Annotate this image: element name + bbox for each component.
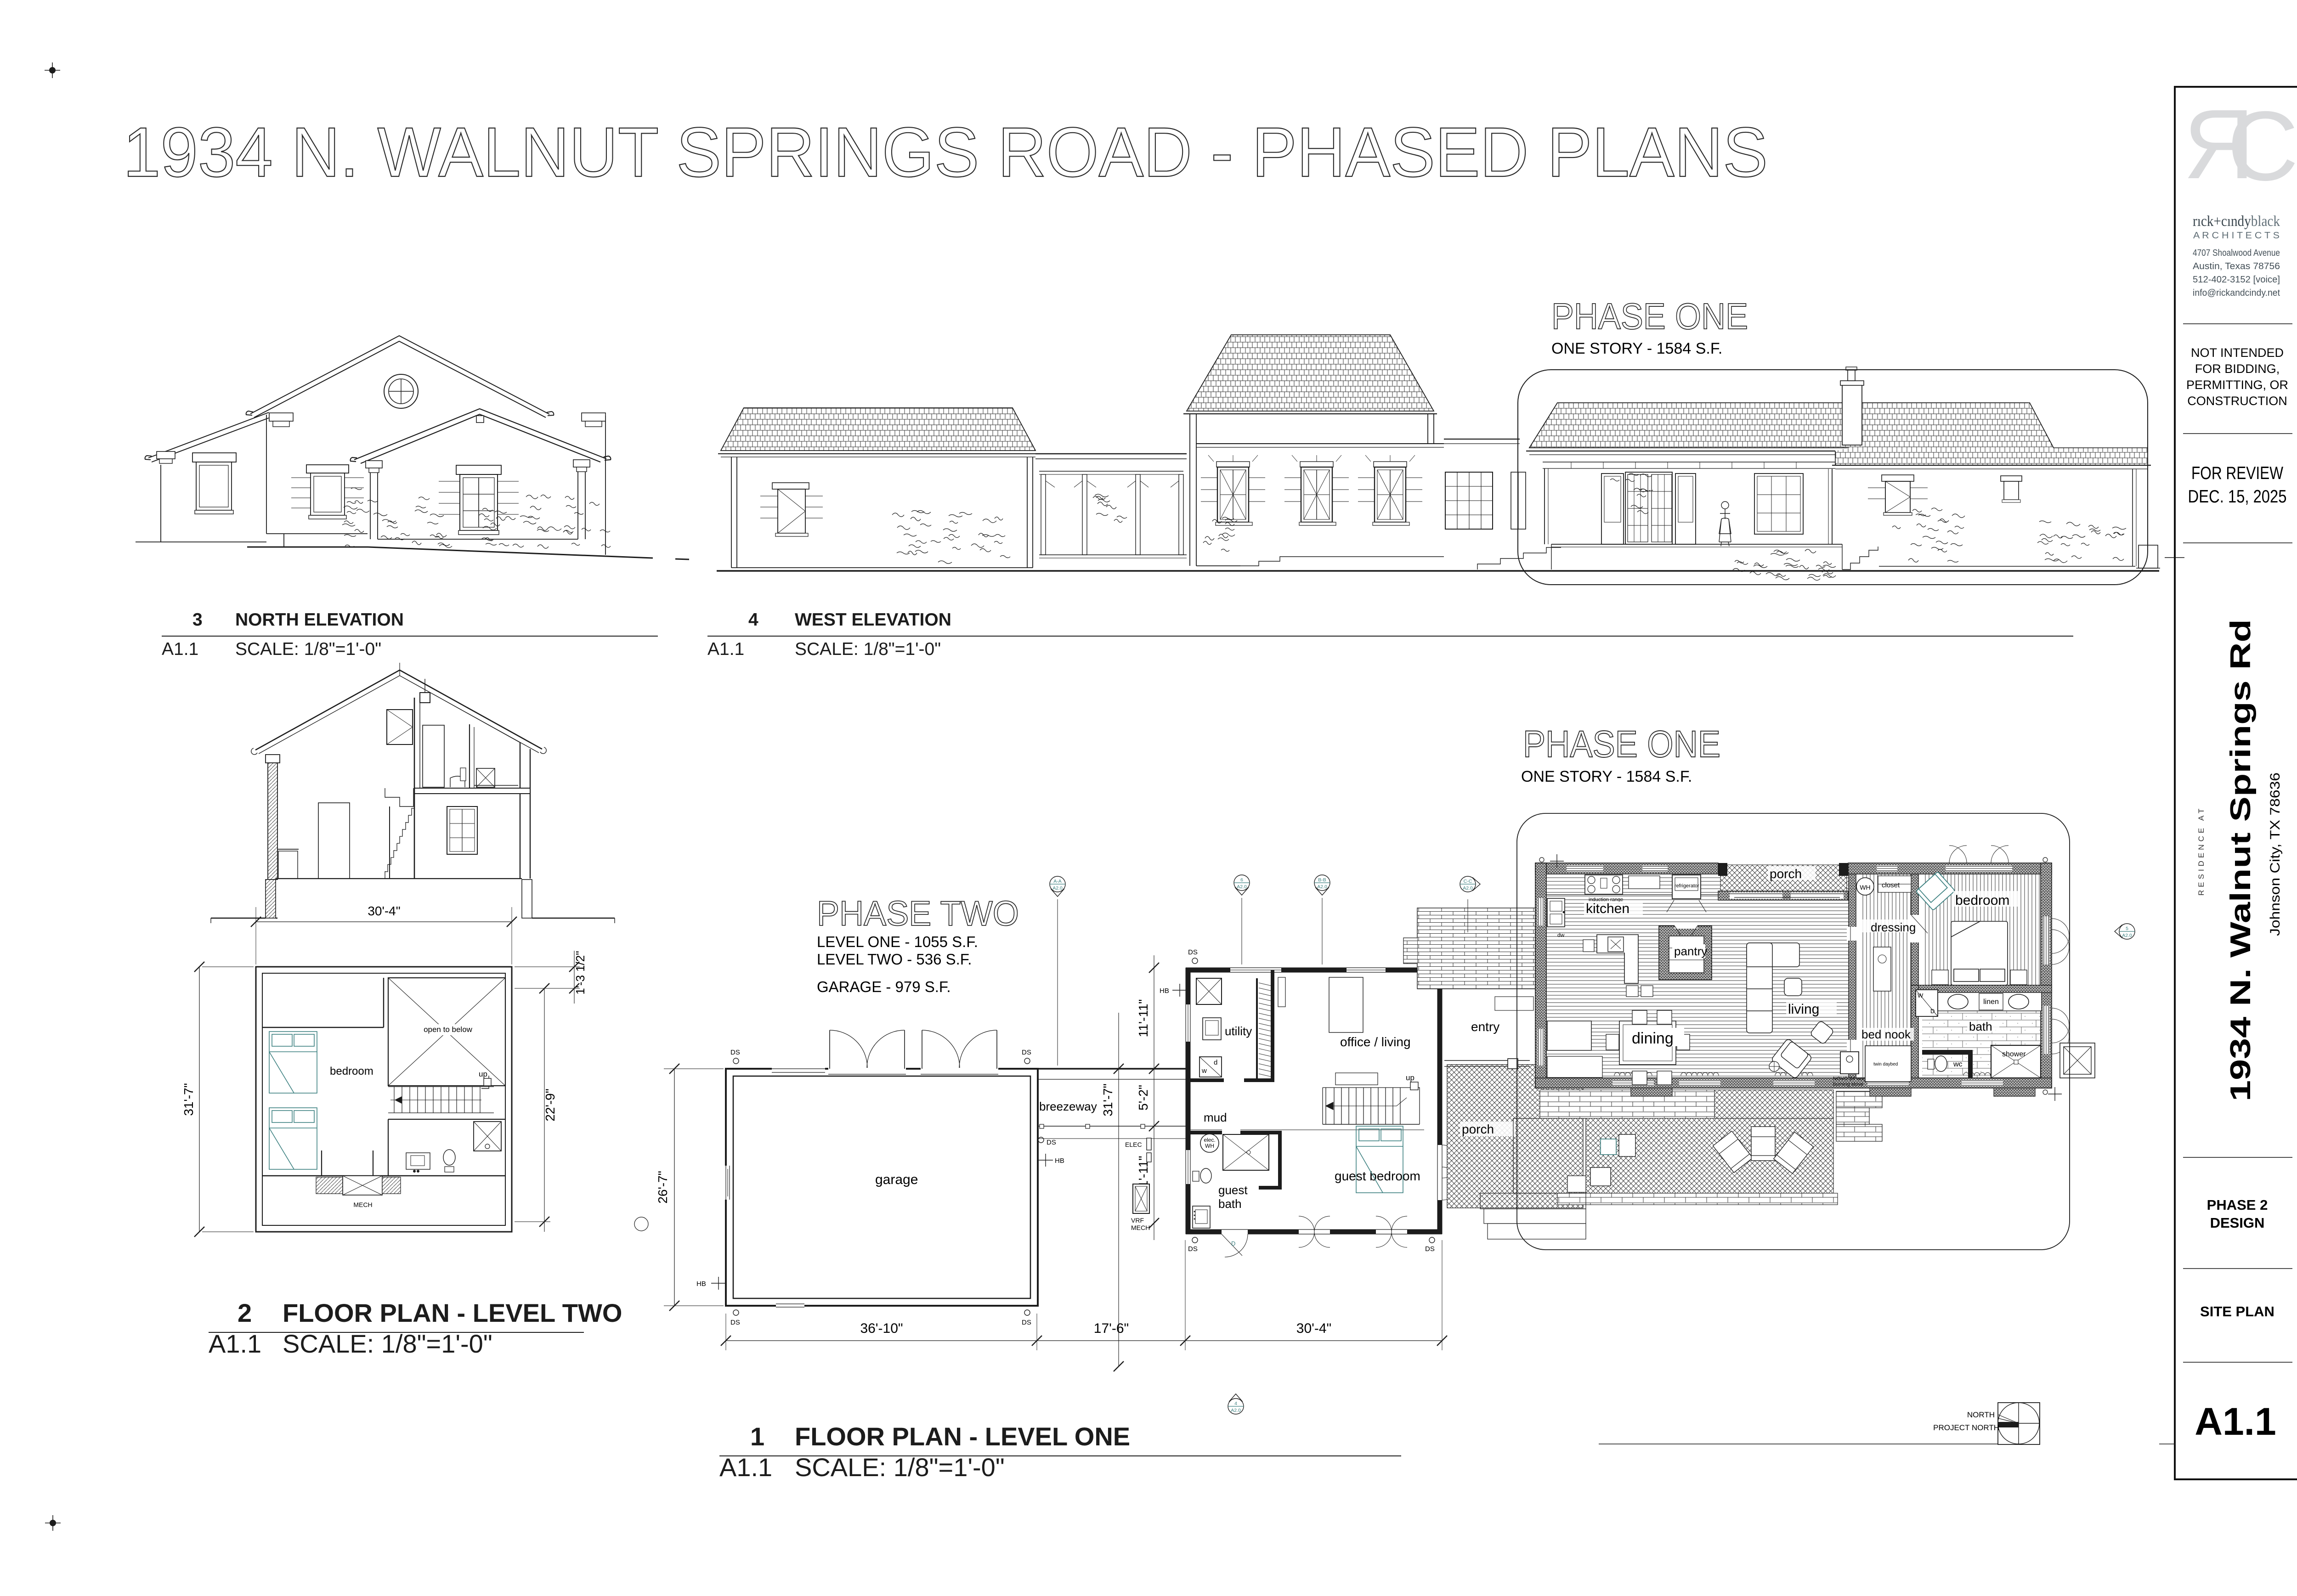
svg-text:1934 N. WALNUT SPRINGS ROAD -: 1934 N. WALNUT SPRINGS ROAD - PHASED PLA…: [123, 113, 1768, 192]
svg-text:SCALE: 1/8"=1'-0": SCALE: 1/8"=1'-0": [795, 1453, 1005, 1482]
svg-text:bath: bath: [1969, 1020, 1992, 1033]
svg-text:pantry: pantry: [1674, 944, 1707, 958]
svg-text:WEST ELEVATION: WEST ELEVATION: [795, 610, 951, 630]
svg-text:mud: mud: [1204, 1111, 1227, 1124]
svg-text:DS: DS: [1022, 1319, 1031, 1326]
svg-text:closet: closet: [1882, 881, 1900, 889]
svg-text:FOR REVIEW: FOR REVIEW: [2191, 463, 2283, 483]
svg-text:SCALE: 1/8"=1'-0": SCALE: 1/8"=1'-0": [235, 639, 381, 659]
svg-text:WH: WH: [1860, 884, 1870, 891]
svg-text:GARAGE - 979 S.F.: GARAGE - 979 S.F.: [817, 978, 951, 995]
svg-text:C: C: [2227, 90, 2297, 201]
svg-text:A2.0: A2.0: [1231, 1408, 1241, 1413]
svg-text:A1.1: A1.1: [707, 639, 744, 659]
svg-text:ELEC: ELEC: [1125, 1141, 1142, 1148]
svg-text:HB: HB: [1055, 1157, 1064, 1165]
svg-text:guest bedroom: guest bedroom: [1335, 1169, 1420, 1183]
svg-text:PROJECT NORTH: PROJECT NORTH: [1933, 1423, 1999, 1432]
svg-text:4: 4: [1234, 1401, 1237, 1406]
svg-text:A2.0: A2.0: [1317, 884, 1327, 890]
svg-text:A2.0: A2.0: [1237, 884, 1247, 890]
svg-text:A2.0: A2.0: [2122, 933, 2132, 938]
svg-text:up: up: [479, 1070, 487, 1078]
svg-text:dressing: dressing: [1871, 920, 1916, 934]
svg-text:open to below: open to below: [424, 1025, 473, 1034]
svg-text:bedroom: bedroom: [330, 1065, 373, 1077]
svg-text:shower: shower: [2002, 1050, 2026, 1058]
svg-text:FOR BIDDING,: FOR BIDDING,: [2195, 362, 2280, 376]
svg-text:ONE STORY - 1584 S.F.: ONE STORY - 1584 S.F.: [1551, 340, 1722, 357]
svg-text:bedroom: bedroom: [1955, 893, 2009, 908]
svg-text:D: D: [1930, 1008, 1935, 1015]
svg-text:DS: DS: [1188, 948, 1198, 956]
svg-text:office / living: office / living: [1340, 1035, 1411, 1049]
svg-text:DS: DS: [1188, 1245, 1198, 1253]
svg-text:C-C: C-C: [1464, 879, 1472, 884]
svg-text:A2.0: A2.0: [1052, 885, 1063, 891]
svg-text:4707 Shoalwood Avenue: 4707 Shoalwood Avenue: [2193, 248, 2280, 258]
svg-text:bed nook: bed nook: [1861, 1027, 1911, 1041]
svg-text:kitchen: kitchen: [1586, 901, 1629, 916]
svg-text:W: W: [1918, 992, 1924, 999]
svg-text:WH: WH: [1205, 1143, 1214, 1149]
svg-text:1934 N. Walnut Springs Rd: 1934 N. Walnut Springs Rd: [2225, 619, 2257, 1101]
svg-text:DESIGN: DESIGN: [2210, 1215, 2265, 1231]
svg-text:A-A: A-A: [1053, 879, 1062, 884]
svg-text:A1.1: A1.1: [2195, 1400, 2276, 1443]
svg-text:PHASE ONE: PHASE ONE: [1523, 723, 1720, 765]
svg-text:30'-4": 30'-4": [368, 904, 400, 918]
svg-text:26'-7": 26'-7": [656, 1171, 670, 1203]
svg-text:SITE PLAN: SITE PLAN: [2200, 1303, 2274, 1320]
svg-text:Johnson City, TX 78636: Johnson City, TX 78636: [2268, 773, 2283, 936]
svg-text:B-B: B-B: [1318, 877, 1326, 883]
svg-text:5: 5: [2126, 926, 2128, 931]
svg-text:A R C H I T E C T S: A R C H I T E C T S: [2193, 231, 2280, 241]
svg-text:guest: guest: [1218, 1183, 1248, 1197]
svg-text:4: 4: [748, 610, 758, 630]
svg-text:17'-6": 17'-6": [1094, 1321, 1129, 1336]
svg-text:DS: DS: [1425, 1245, 1435, 1253]
svg-text:RESIDENCE AT: RESIDENCE AT: [2197, 806, 2206, 896]
svg-text:ONE STORY - 1584 S.F.: ONE STORY - 1584 S.F.: [1521, 768, 1692, 785]
svg-text:DEC. 15, 2025: DEC. 15, 2025: [2188, 487, 2287, 507]
svg-text:36'-10": 36'-10": [860, 1321, 903, 1336]
svg-text:utility: utility: [1225, 1024, 1252, 1038]
svg-text:LEVEL TWO - 536 S.F.: LEVEL TWO - 536 S.F.: [817, 951, 972, 968]
svg-text:6: 6: [1240, 877, 1243, 883]
svg-text:twin daybed: twin daybed: [1873, 1062, 1898, 1067]
svg-text:rıck+cındyblack: rıck+cındyblack: [2193, 213, 2280, 230]
svg-text:A1.1: A1.1: [209, 1329, 261, 1358]
svg-text:A1.1: A1.1: [719, 1453, 772, 1482]
svg-text:dw: dw: [1557, 932, 1565, 938]
svg-text:3: 3: [192, 610, 203, 630]
svg-text:HB: HB: [1160, 987, 1169, 995]
svg-text:MECH: MECH: [1131, 1224, 1150, 1231]
svg-text:DS: DS: [730, 1319, 740, 1326]
svg-text:FLOOR PLAN - LEVEL TWO: FLOOR PLAN - LEVEL TWO: [283, 1298, 622, 1327]
svg-text:512-402-3152 [voice]: 512-402-3152 [voice]: [2193, 275, 2280, 285]
svg-text:5'-2": 5'-2": [1136, 1085, 1150, 1111]
svg-text:refrigerator: refrigerator: [1675, 883, 1699, 889]
svg-text:info@rickandcindy.net: info@rickandcindy.net: [2193, 288, 2280, 298]
svg-text:Austin, Texas 78756: Austin, Texas 78756: [2193, 261, 2280, 271]
svg-text:MECH: MECH: [353, 1201, 372, 1208]
svg-text:PHASE ONE: PHASE ONE: [1551, 296, 1748, 337]
svg-text:wc: wc: [1953, 1060, 1963, 1068]
svg-text:NORTH ELEVATION: NORTH ELEVATION: [235, 610, 404, 630]
svg-text:d: d: [1214, 1059, 1217, 1066]
svg-text:burning stove: burning stove: [1833, 1082, 1863, 1087]
svg-text:D: D: [1231, 1240, 1235, 1247]
svg-text:living: living: [1788, 1002, 1819, 1017]
svg-text:HB: HB: [696, 1280, 706, 1288]
svg-text:A1.1: A1.1: [162, 639, 198, 659]
svg-text:NORTH: NORTH: [1967, 1410, 1995, 1419]
svg-text:DS: DS: [1022, 1049, 1031, 1056]
svg-text:SCALE: 1/8"=1'-0": SCALE: 1/8"=1'-0": [795, 639, 941, 659]
svg-text:NOT INTENDED: NOT INTENDED: [2191, 346, 2284, 360]
svg-text:porch: porch: [1462, 1122, 1494, 1136]
svg-text:SCALE: 1/8"=1'-0": SCALE: 1/8"=1'-0": [283, 1329, 492, 1358]
svg-text:linen: linen: [1983, 998, 1999, 1006]
svg-text:entry: entry: [1471, 1020, 1499, 1034]
svg-text:DS: DS: [730, 1049, 740, 1056]
svg-text:porch: porch: [1770, 867, 1802, 881]
svg-text:30'-4": 30'-4": [1296, 1321, 1331, 1336]
svg-text:PHASE 2: PHASE 2: [2207, 1197, 2268, 1213]
svg-text:up: up: [1406, 1073, 1414, 1082]
svg-text:dining: dining: [1632, 1030, 1674, 1047]
svg-text:2: 2: [238, 1298, 252, 1327]
svg-text:1: 1: [750, 1422, 764, 1451]
svg-text:31'-7": 31'-7": [181, 1083, 196, 1116]
svg-text:PHASE TWO: PHASE TWO: [817, 894, 1019, 933]
svg-text:FLOOR PLAN - LEVEL ONE: FLOOR PLAN - LEVEL ONE: [795, 1422, 1130, 1451]
svg-text:garage: garage: [875, 1172, 918, 1187]
svg-text:DS: DS: [1047, 1139, 1056, 1146]
svg-text:31'-7": 31'-7": [1101, 1083, 1115, 1116]
svg-text:PERMITTING, OR: PERMITTING, OR: [2186, 378, 2288, 392]
svg-text:bath: bath: [1218, 1197, 1242, 1211]
svg-text:CONSTRUCTION: CONSTRUCTION: [2187, 394, 2287, 408]
svg-text:elec.: elec.: [1204, 1137, 1215, 1143]
svg-text:11'-11": 11'-11": [1136, 999, 1150, 1038]
svg-text:LEVEL ONE - 1055 S.F.: LEVEL ONE - 1055 S.F.: [817, 933, 978, 950]
svg-text:breezeway: breezeway: [1039, 1100, 1097, 1113]
svg-text:22'-9": 22'-9": [543, 1088, 557, 1121]
svg-text:w: w: [1201, 1067, 1207, 1075]
svg-text:A2.0: A2.0: [1463, 885, 1473, 891]
svg-text:VRF: VRF: [1131, 1217, 1144, 1224]
svg-text:NOVO 24 wood: NOVO 24 wood: [1833, 1076, 1868, 1082]
svg-text:1'-3 1/2": 1'-3 1/2": [573, 951, 587, 994]
